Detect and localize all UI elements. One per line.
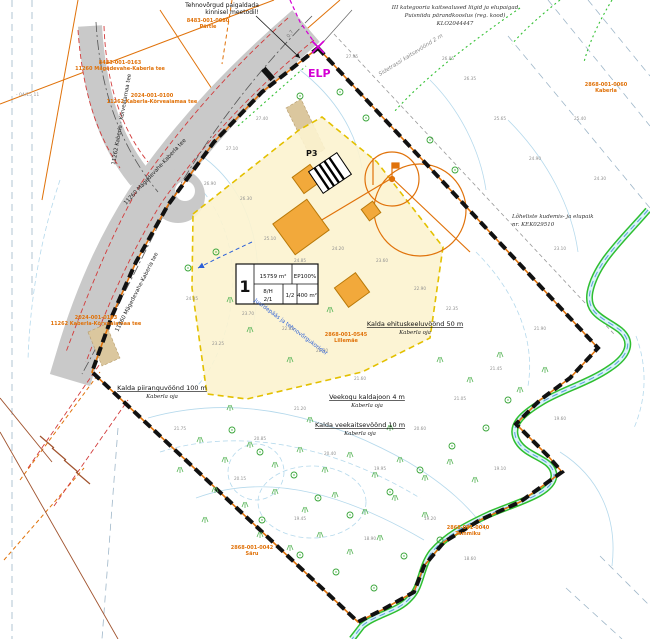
note-top-right-line2: Puisniidu pärandkooslus (reg. kood): [404, 12, 506, 19]
tree-icon: [449, 443, 455, 449]
tree-icon: [185, 265, 191, 271]
site-plan-map: 27.9526.8526.3525.6524.9027.4027.1026.90…: [0, 0, 650, 639]
spot-height: 26.85: [442, 56, 454, 61]
tree-icon: [291, 472, 297, 478]
tree-icon: [315, 495, 321, 501]
note-top-left-line2: kinnisel meetodil!: [205, 9, 259, 16]
spot-height: 27.95: [346, 54, 358, 59]
tree-icon: [259, 517, 265, 523]
cadastral-name: 11262 Kaberla-Kõrveaiamaa tee: [51, 321, 142, 327]
grass-icon: [317, 532, 323, 538]
grass-icon: [347, 452, 353, 458]
sheet-reference: - 04/15 11: [16, 92, 39, 98]
spot-height: 25.40: [574, 116, 586, 121]
cadastral-name: Pärtle: [200, 24, 217, 30]
spot-height: 27.40: [256, 116, 268, 121]
spot-height: 23.25: [212, 341, 224, 346]
grass-icon: [467, 377, 473, 383]
cadastral-name: Tammiku: [455, 531, 481, 537]
grass-icon: [177, 467, 183, 473]
grass-icon: [397, 457, 403, 463]
zone-label-stream: Kaberla oja: [398, 330, 431, 336]
note-top-left-line1: Tehnovõrgud paigaldada: [184, 2, 259, 9]
parking-label: P3: [306, 149, 317, 158]
spot-height: 26.35: [464, 76, 476, 81]
site-plan-canvas: 27.9526.8526.3525.6524.9027.4027.1026.90…: [0, 0, 650, 639]
grass-icon: [377, 535, 383, 541]
grass-icon: [272, 462, 278, 468]
tree-icon: [257, 449, 263, 455]
spot-height: 19.95: [374, 466, 386, 471]
tree-icon: [337, 89, 343, 95]
cadastral-name: Lillemäe: [334, 338, 358, 344]
spot-height: 24.05: [186, 296, 198, 301]
spot-height: 23.10: [554, 246, 566, 251]
zone-label-stream: Kaberla oja: [145, 394, 178, 400]
tree-icon: [417, 467, 423, 473]
spot-height: 25.10: [264, 236, 276, 241]
spot-height: 21.20: [294, 406, 306, 411]
tree-icon: [347, 512, 353, 518]
spot-height: 20.40: [324, 451, 336, 456]
grass-icon: [517, 387, 523, 393]
zone-label-title: Kalda ehituskeeluvöönd 50 m: [367, 320, 463, 328]
side-zone-label: Sidetrassi kaitsevöönd 2 m: [378, 33, 444, 78]
plot-ratio: 1/2: [286, 293, 295, 299]
spot-height: 20.15: [234, 476, 246, 481]
grass-icon: [302, 507, 308, 513]
tree-icon: [427, 137, 433, 143]
note-right-line1: Lõheliste kudemis- ja elupaik: [511, 213, 594, 220]
tree-icon: [452, 167, 458, 173]
spot-height: 24.20: [332, 246, 344, 251]
tree-icon: [371, 585, 377, 591]
zone-label-stream: Kaberla oja: [350, 403, 383, 409]
spot-height: 21.60: [354, 376, 366, 381]
spot-height: 25.65: [494, 116, 506, 121]
plot-footprint: 400 m²: [297, 292, 317, 299]
slope-hachures: [0, 398, 118, 639]
plot-area: 15759 m²: [260, 273, 287, 280]
plot-purpose: EP100%: [294, 274, 317, 280]
spot-height: 21.45: [490, 366, 502, 371]
grass-icon: [422, 475, 428, 481]
zone-label-title: Veekogu kaldajoon 4 m: [329, 393, 405, 401]
grass-icon: [242, 502, 248, 508]
tree-icon: [401, 553, 407, 559]
zone-label-title: Kalda piiranguvöönd 100 m: [117, 384, 207, 392]
note-top-right-line3: KLO2044447: [436, 21, 474, 27]
grass-icon: [222, 457, 228, 463]
grass-icon: [287, 545, 293, 551]
plot-number: 1: [239, 277, 250, 296]
spot-height: 19.60: [554, 416, 566, 421]
spot-height: 22.90: [414, 286, 426, 291]
tree-icon: [297, 93, 303, 99]
tree-icon: [363, 115, 369, 121]
plot-buildings: 2/1: [264, 297, 273, 303]
cadastral-name: 11262 Kaberla-Kõrveaiamaa tee: [107, 99, 198, 105]
spot-height: 24.30: [594, 176, 606, 181]
plot-storeys: 8/H: [263, 289, 273, 295]
spot-height: 18.90: [364, 536, 376, 541]
tree-icon: [297, 552, 303, 558]
tree-icon: [483, 425, 489, 431]
spot-height: 22.35: [446, 306, 458, 311]
spot-height: 20.85: [254, 436, 266, 441]
grass-icon: [392, 495, 398, 501]
grass-icon: [437, 357, 443, 363]
tree-icon: [387, 489, 393, 495]
grass-icon: [247, 442, 253, 448]
grass-icon: [542, 367, 548, 373]
grass-icon: [197, 437, 203, 443]
cadastral-name: Kaberla: [595, 88, 617, 94]
tree-icon: [505, 397, 511, 403]
spot-height: 23.70: [242, 311, 254, 316]
grass-icon: [307, 417, 313, 423]
zone-label-title: Kalda veekaitsevöönd 10 m: [315, 421, 405, 429]
grass-icon: [332, 492, 338, 498]
cadastral-name: Säru: [245, 551, 258, 557]
grass-icon: [322, 467, 328, 473]
spot-height: 19.10: [494, 466, 506, 471]
tree-icon: [229, 427, 235, 433]
grass-icon: [347, 549, 353, 555]
spot-height: 26.30: [240, 196, 252, 201]
spot-height: 27.10: [226, 146, 238, 151]
spot-height: 21.05: [454, 396, 466, 401]
plot-table: 1 15759 m² EP100% 8/H 2/1 1/2 400 m²: [236, 264, 318, 304]
spot-height: 18.60: [464, 556, 476, 561]
spot-height: 19.45: [294, 516, 306, 521]
spot-height: 26.90: [204, 181, 216, 186]
grass-icon: [447, 459, 453, 465]
grass-icon: [202, 517, 208, 523]
spot-height: 21.75: [174, 426, 186, 431]
well-symbol: [392, 163, 399, 168]
note-top-right-line1: III kategooria kaitsealused liigid ja el…: [391, 5, 519, 11]
cadastral-name: 11260 Mägedevahe-Kaberla tee: [75, 66, 165, 72]
spot-height: 24.85: [294, 258, 306, 263]
grass-icon: [472, 477, 478, 483]
elp-label: ELP: [308, 67, 331, 80]
spot-height: 23.60: [376, 258, 388, 263]
plot-1-area: [192, 117, 443, 399]
tree-icon: [333, 569, 339, 575]
grass-icon: [227, 405, 233, 411]
spot-height: 19.20: [424, 516, 436, 521]
spot-height: 24.90: [529, 156, 541, 161]
note-right-line2: nr. KEK029510: [512, 222, 555, 228]
grass-icon: [497, 352, 503, 358]
spot-height: 21.90: [534, 326, 546, 331]
zone-label-stream: Kaberla oja: [343, 431, 376, 437]
spot-height: 20.60: [414, 426, 426, 431]
